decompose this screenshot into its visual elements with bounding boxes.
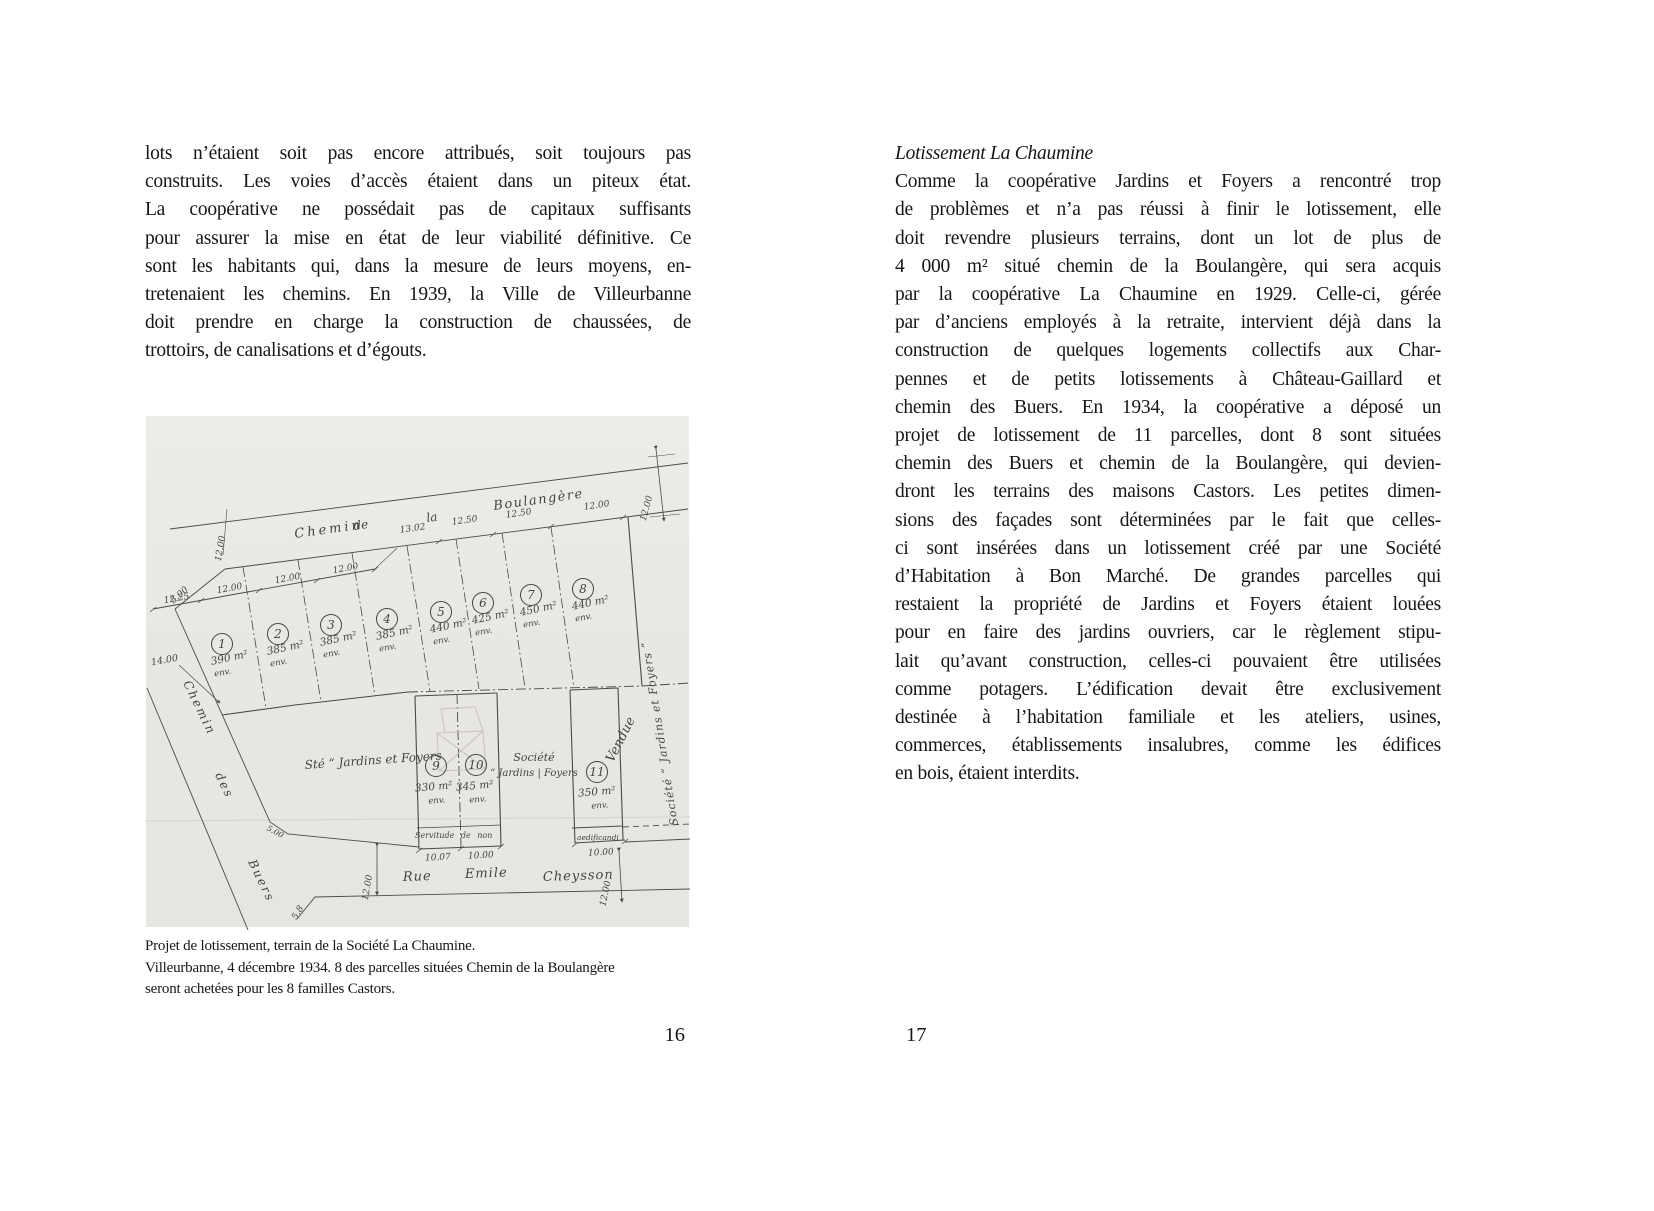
text-line: lait qu’avant construction, celles-ci po… [895,648,1441,676]
text-line: doit revendre plusieurs terrains, dont u… [895,225,1441,253]
text-line: sions des façades sont déterminées par l… [895,507,1441,535]
text-line: doit prendre en charge la construction d… [145,309,691,337]
svg-text:5: 5 [437,605,445,619]
text-line: destinée à l’habitation familiale et les… [895,704,1441,732]
text-line: construits. Les voies d’accès étaient da… [145,168,691,196]
text-line: Villeurbanne, 4 décembre 1934. 8 des par… [145,958,691,980]
text-line: sont les habitants qui, dans la mesure d… [145,253,691,281]
text-line: pour assurer la mise en état de leur via… [145,225,691,253]
right-page: Lotissement La Chaumine Comme la coopéra… [895,140,1441,789]
text-line: comme potagers. L’édification devait êtr… [895,676,1441,704]
societe-parcel-label-1: Société [513,751,555,764]
street-bottom-word-1: Rue [402,869,432,885]
svg-text:env.: env. [428,795,446,806]
plan-svg: Vendue Chemin de la Boulangère Chemin de… [145,397,690,930]
aedificandi-label: aedificandi [577,833,619,842]
svg-text:7: 7 [527,588,535,602]
street-top-word-2: de [352,517,369,533]
svg-text:9: 9 [432,759,440,773]
text-line: projet de lotissement de 11 parcelles, d… [895,422,1441,450]
page-number-17: 17 [895,1024,1441,1047]
svg-text:env.: env. [469,794,487,805]
svg-text:2: 2 [273,627,282,641]
text-line: de problèmes et n’a pas réussi à finir l… [895,196,1441,224]
text-line: construction de quelques logements colle… [895,337,1441,365]
svg-text:11: 11 [589,765,604,779]
text-line: par d’anciens employés à la retraite, in… [895,309,1441,337]
text-line: 4 000 m² situé chemin de la Boulangère, … [895,253,1441,281]
text-line: pour en faire des jardins ouvriers, car … [895,619,1441,647]
book-spread: { "left_page": { "body_lines": [ "lots n… [0,0,1654,1211]
text-line: pennes et de petits lotissements à Châte… [895,366,1441,394]
svg-text:4: 4 [382,612,391,626]
left-page-paragraph: lots n’étaient soit pas encore attribués… [145,140,691,366]
svg-text:3: 3 [327,618,335,632]
text-line: ci sont insérées dans un lotissement cré… [895,535,1441,563]
text-line: La coopérative ne possédait pas de capit… [145,196,691,224]
svg-text:10.00: 10.00 [588,847,615,858]
svg-text:8: 8 [579,582,587,596]
text-line: lots n’étaient soit pas encore attribués… [145,140,691,168]
section-heading: Lotissement La Chaumine [895,140,1441,168]
text-line: restaient la propriété de Jardins et Foy… [895,591,1441,619]
svg-text:10.00: 10.00 [468,850,495,861]
street-top-word-3: la [425,510,438,525]
svg-text:10: 10 [468,758,484,772]
svg-text:env.: env. [591,800,609,811]
text-line: Projet de lotissement, terrain de la Soc… [145,936,691,958]
lotissement-plan-figure: Vendue Chemin de la Boulangère Chemin de… [145,397,690,930]
text-line: trottoirs, de canalisations et d’égouts. [145,337,691,365]
text-line: dront les terrains des maisons Castors. … [895,478,1441,506]
svg-text:1: 1 [218,637,226,651]
figure-caption: Projet de lotissement, terrain de la Soc… [145,936,691,1001]
text-line: tretenaient les chemins. En 1939, la Vil… [145,281,691,309]
text-line: chemin des Buers. En 1934, la coopérativ… [895,394,1441,422]
street-bottom-word-2: Emile [464,866,508,883]
societe-parcel-label-2: “ Jardins | Foyers [490,768,578,779]
svg-text:6: 6 [479,596,487,610]
page-number-16: 16 [145,1024,691,1047]
text-line: d’Habitation à Bon Marché. De grandes pa… [895,563,1441,591]
text-line: commerces, établissements insalubres, co… [895,732,1441,760]
text-line: Comme la coopérative Jardins et Foyers a… [895,168,1441,196]
text-line: en bois, étaient interdits. [895,760,1441,788]
right-page-paragraph: Comme la coopérative Jardins et Foyers a… [895,168,1441,788]
text-line: seront achetées pour les 8 familles Cast… [145,979,691,1001]
svg-text:10.07: 10.07 [425,852,452,863]
text-line: chemin des Buers et chemin de la Boulang… [895,450,1441,478]
servitude-label: Servitude de non [415,831,492,840]
text-line: par la coopérative La Chaumine en 1929. … [895,281,1441,309]
